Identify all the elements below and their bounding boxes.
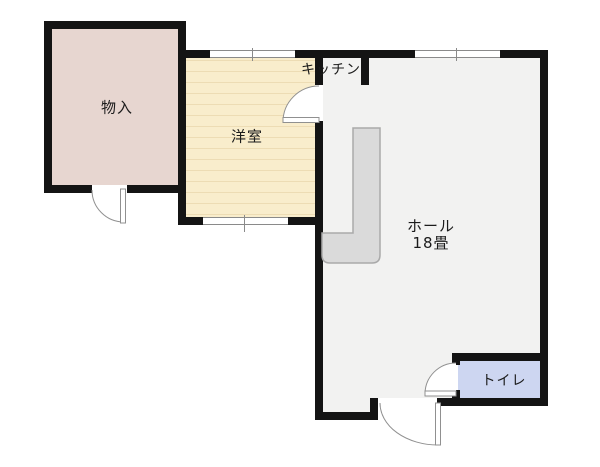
storage-door-swing: [92, 190, 124, 222]
floor-plan: 物入 洋室 キッチン ホール 18畳 トイレ: [0, 0, 600, 467]
storage-door-leaf: [121, 189, 126, 223]
toilet-door-swing: [425, 363, 456, 394]
toilet-label: トイレ: [482, 370, 527, 390]
western-door-leaf: [283, 118, 319, 123]
toilet-door-leaf: [425, 391, 456, 396]
entry-door-swing: [380, 403, 438, 445]
western-room-label: 洋室: [231, 126, 263, 147]
western-door-swing: [283, 86, 319, 122]
entry-door-leaf: [436, 403, 441, 445]
kitchen-counter: [322, 128, 380, 263]
doors-and-fixtures-layer: [0, 0, 600, 467]
hall-label-size: 18畳: [407, 235, 455, 252]
hall-label-name: ホール: [407, 218, 455, 235]
storage-room-label: 物入: [101, 97, 133, 118]
kitchen-label: キッチン: [301, 59, 361, 79]
hall-label: ホール 18畳: [407, 218, 455, 252]
